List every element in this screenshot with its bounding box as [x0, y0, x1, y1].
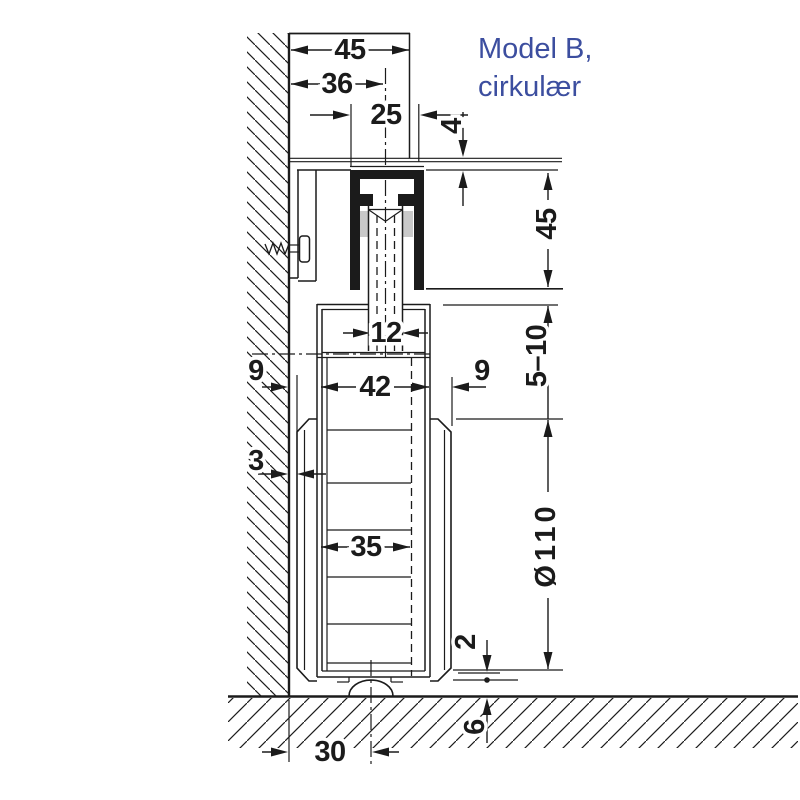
dim-wall-clearance-label: 3 — [248, 445, 264, 477]
technical-drawing-page: 45 36 25 4 45 5–10 12 9 42 9 3 35 Ø110 2… — [0, 0, 800, 800]
dim-panel-width-label: 35 — [350, 531, 382, 563]
dimension-labels: 45 36 25 4 45 5–10 12 9 42 9 3 35 Ø110 2… — [248, 34, 563, 768]
dim-ceiling-gap-label: 4 — [436, 118, 468, 134]
screw-boss — [300, 236, 310, 262]
dim-track-width-label: 25 — [370, 99, 402, 131]
dim-track-height-label: 45 — [531, 208, 563, 240]
track-top-bar — [350, 170, 424, 179]
model-title: Model B, cirkulær — [478, 33, 592, 103]
dim-reference-dot — [484, 677, 490, 683]
roller-pad-left — [360, 211, 369, 237]
soffit-lines — [289, 158, 562, 170]
dimension-graphics — [258, 46, 553, 757]
track-left-lip — [360, 194, 373, 206]
roller-pad-right — [403, 211, 413, 237]
dim-top-to-center-label: 36 — [321, 68, 353, 100]
dim-door-width-label: 42 — [359, 371, 390, 403]
track-profile — [350, 167, 424, 291]
sliding-door-section-drawing: 45 36 25 4 45 5–10 12 9 42 9 3 35 Ø110 2… — [0, 0, 800, 800]
dim-bottom-gap-label: 2 — [450, 634, 482, 650]
dim-right-gap-label: 9 — [474, 355, 490, 387]
model-title-line2: cirkulær — [478, 71, 581, 103]
wheel-left-outline — [297, 419, 317, 681]
dim-floor-depth-label: 6 — [459, 719, 491, 735]
track-left-bar — [350, 170, 360, 290]
dim-left-gap-label: 9 — [248, 355, 264, 387]
dim-bolt-width-label: 12 — [370, 317, 401, 349]
track-right-bar — [414, 170, 424, 290]
wheel-right-outline — [430, 419, 451, 681]
dim-top-clearance-label: 5–10 — [521, 325, 553, 388]
dim-guide-offset-label: 30 — [314, 736, 345, 768]
dim-wheel-diameter-label: Ø110 — [530, 502, 562, 587]
dim-top-total-label: 45 — [334, 34, 366, 66]
door-panel — [317, 304, 430, 677]
floor-guide — [337, 677, 403, 696]
track-right-lip — [398, 194, 414, 206]
model-title-line1: Model B, — [478, 33, 592, 65]
